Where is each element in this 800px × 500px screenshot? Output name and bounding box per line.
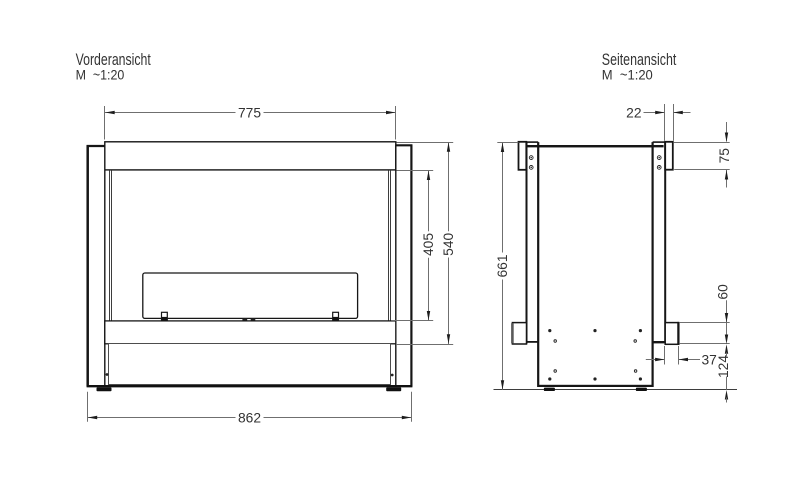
svg-text:22: 22 [626, 105, 641, 120]
svg-text:75: 75 [717, 148, 732, 164]
svg-text:405: 405 [421, 233, 436, 256]
svg-text:661: 661 [495, 254, 510, 277]
svg-text:124: 124 [716, 355, 731, 378]
svg-text:775: 775 [238, 105, 261, 120]
svg-text:M ~1:20: M ~1:20 [602, 68, 653, 84]
svg-text:60: 60 [716, 284, 731, 300]
svg-text:37: 37 [702, 353, 717, 368]
svg-text:540: 540 [441, 232, 456, 255]
svg-text:Seitenansicht: Seitenansicht [602, 51, 677, 69]
svg-text:862: 862 [238, 410, 261, 425]
svg-text:M ~1:20: M ~1:20 [76, 67, 125, 83]
